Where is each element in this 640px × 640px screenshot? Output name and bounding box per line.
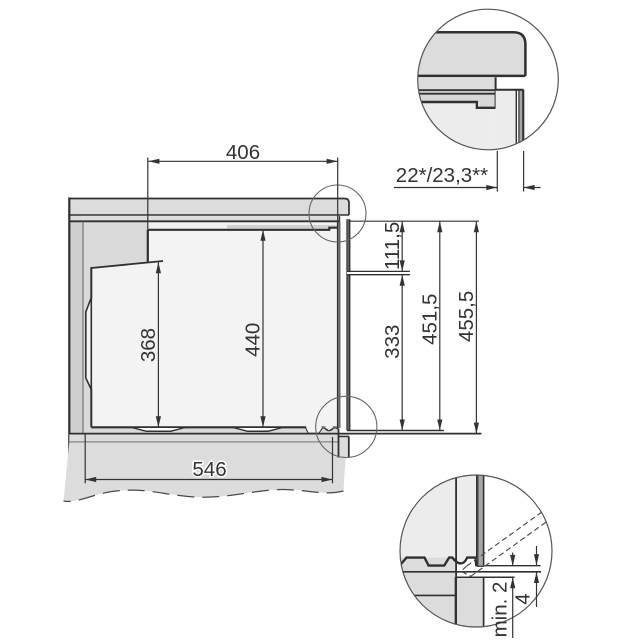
svg-text:440: 440 [242,323,265,357]
svg-text:111,5: 111,5 [381,222,404,270]
svg-text:333: 333 [381,325,404,359]
svg-text:22*/23,3**: 22*/23,3** [396,164,488,187]
svg-text:546: 546 [192,458,226,481]
svg-text:451,5: 451,5 [419,294,442,345]
svg-text:455,5: 455,5 [455,291,478,342]
svg-text:368: 368 [137,328,160,362]
svg-text:min. 2: min. 2 [489,582,512,638]
svg-text:4: 4 [512,593,535,604]
svg-text:406: 406 [226,141,260,164]
